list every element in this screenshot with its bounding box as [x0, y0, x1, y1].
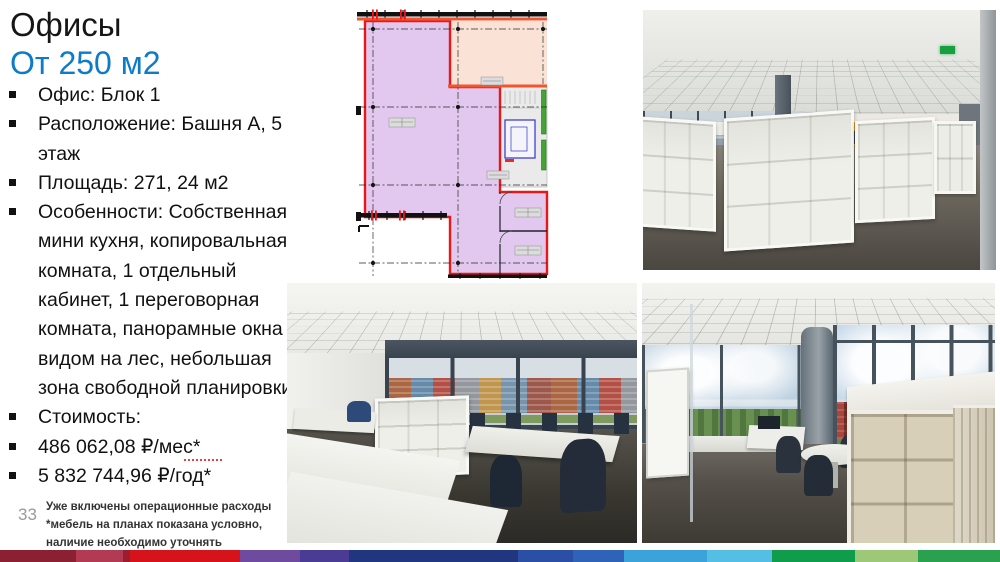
- bullet-marker-icon: [9, 413, 16, 420]
- footer-bar-segment: [76, 550, 123, 562]
- window-transom: [833, 340, 995, 343]
- footer-bar-segment: [0, 550, 76, 562]
- office-chair: [347, 401, 372, 422]
- monitor: [758, 416, 779, 429]
- bullet-marker-icon: [9, 208, 16, 215]
- footer-bar-segment: [240, 550, 300, 562]
- slide-canvas: Офисы От 250 м2 Офис: Блок 1 Расположени…: [0, 0, 1000, 562]
- office-chair: [804, 455, 832, 497]
- bullet-marker-icon: [9, 472, 16, 479]
- footer-bar-segment: [772, 550, 855, 562]
- plan-area-peach: [450, 21, 547, 86]
- shelving-unit: [855, 117, 935, 223]
- footer-bar-segment: [349, 550, 518, 562]
- footnote: Уже включены операционные расходы *мебел…: [46, 498, 296, 552]
- corner-column: [801, 327, 833, 454]
- footnote-line-1: Уже включены операционные расходы: [46, 498, 296, 516]
- office-photo-bottom-right: [642, 283, 995, 543]
- footer-bar-segment: [624, 550, 707, 562]
- office-photo-top-right: [643, 10, 996, 270]
- glass-partition-edge: [690, 304, 693, 522]
- cabinet-shelves: [847, 410, 961, 543]
- bullet-office: Офис: Блок 1: [8, 81, 343, 110]
- bullet-area: Площадь: 271, 24 м2: [8, 169, 343, 198]
- plan-green-shaft: [542, 90, 547, 134]
- footer-bar-segment: [855, 550, 918, 562]
- footer-bar-segment: [707, 550, 772, 562]
- bullet-marker-icon: [9, 443, 16, 450]
- office-chair: [560, 437, 606, 513]
- spellcheck-underline: [184, 456, 222, 461]
- bullet-location: Расположение: Башня А, 5 этаж: [8, 110, 343, 169]
- footnote-line-2: *мебель на планах показана условно,: [46, 516, 296, 534]
- cabinet-tambour-side: [953, 405, 995, 543]
- right-column: [980, 10, 996, 270]
- plan-wet-core: [505, 120, 535, 158]
- office-photo-bottom-left: [287, 283, 637, 543]
- footer-bar-segment: [130, 550, 240, 562]
- footer-bar-segment: [573, 550, 624, 562]
- shelving-unit: [724, 109, 854, 251]
- office-chair: [776, 436, 801, 472]
- plan-green-shaft: [542, 140, 547, 170]
- window-header: [385, 340, 637, 358]
- floor-plan-drawing: [355, 8, 550, 280]
- footer-color-bar: [0, 550, 1000, 562]
- whiteboard: [646, 367, 689, 478]
- page-subtitle: От 250 м2: [10, 44, 161, 82]
- page-title: Офисы: [10, 6, 121, 44]
- footer-bar-segment: [918, 550, 1000, 562]
- bullet-marker-icon: [9, 179, 16, 186]
- exit-sign: [940, 46, 956, 54]
- footer-bar-segment: [300, 550, 349, 562]
- shelving-unit: [643, 116, 716, 232]
- office-chair: [490, 455, 522, 507]
- bullet-marker-icon: [9, 91, 16, 98]
- footer-bar-segment: [518, 550, 573, 562]
- page-number: 33: [18, 505, 37, 525]
- shelving-unit: [934, 121, 975, 195]
- bullet-marker-icon: [9, 120, 16, 127]
- footer-bar-segment: [123, 550, 130, 562]
- tambour-slats: [953, 408, 995, 543]
